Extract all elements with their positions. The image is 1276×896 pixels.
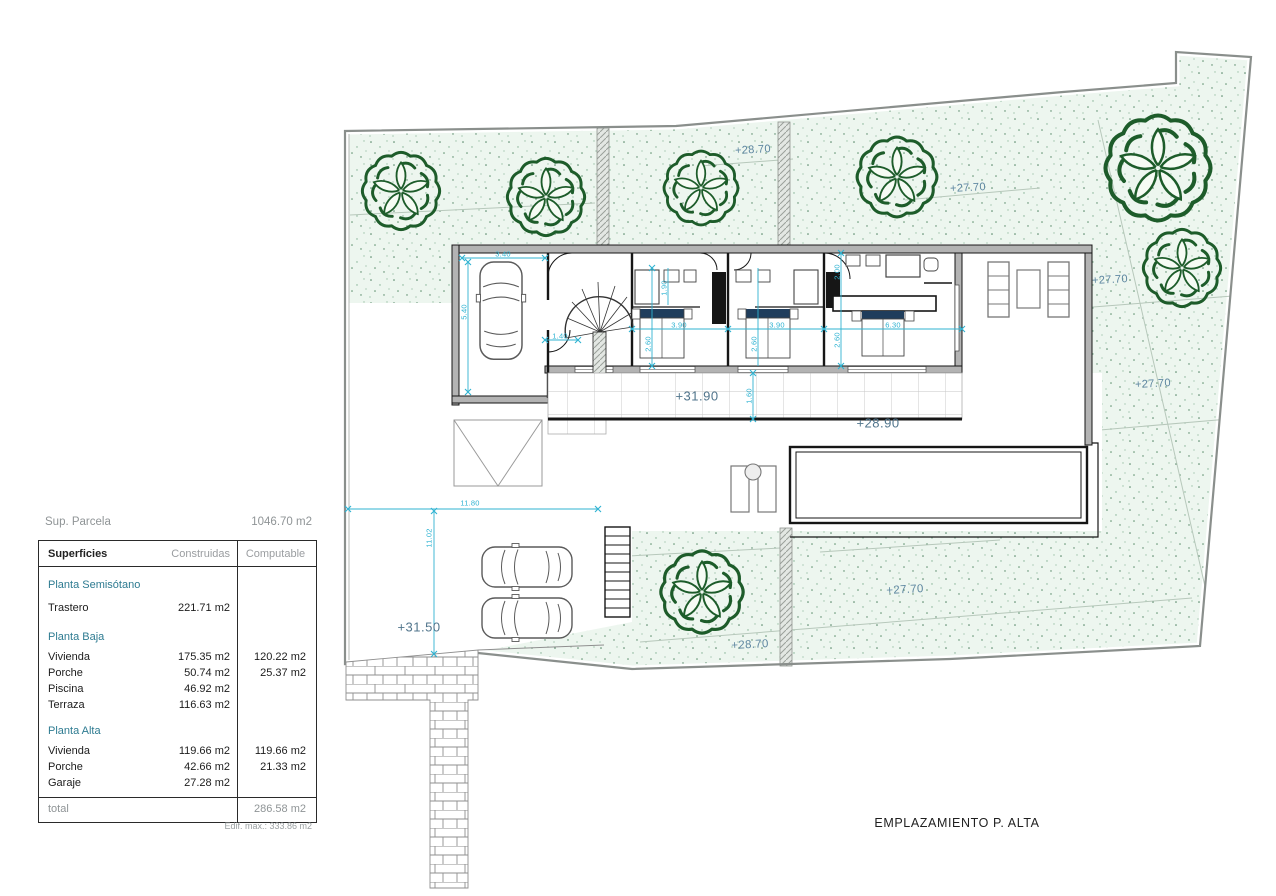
section-planta-baja: Planta Baja — [39, 619, 316, 649]
section-label: Planta Baja — [39, 631, 143, 643]
row-construida: 46.92 m2 — [143, 683, 237, 695]
col-construidas: Construidas — [143, 548, 237, 560]
wardrobe — [833, 296, 936, 311]
table-row: Trastero 221.71 m2 — [39, 597, 316, 619]
bed-headboard — [640, 309, 684, 318]
surfaces-table: Superficies Construidas Computable Plant… — [38, 540, 317, 823]
car-icon — [482, 595, 572, 642]
parcel-area-line: Sup. Parcela 1046.70 m2 — [45, 516, 312, 528]
parcel-area-value: 1046.70 m2 — [251, 516, 312, 528]
row-computable: 25.37 m2 — [237, 667, 314, 679]
row-label: Vivienda — [39, 745, 143, 757]
section-label: Planta Alta — [39, 725, 143, 737]
row-label: Piscina — [39, 683, 143, 695]
section-planta-semisotano: Planta Semisótano — [39, 567, 316, 597]
row-construida: 27.28 m2 — [143, 777, 237, 789]
row-label: Garaje — [39, 777, 143, 789]
pool — [790, 447, 1087, 523]
row-label: Porche — [39, 761, 143, 773]
table-header-row: Superficies Construidas Computable — [39, 541, 316, 567]
table-row: Porche 50.74 m2 25.37 m2 — [39, 665, 316, 681]
exterior-stair-icon — [605, 527, 630, 617]
row-label: Vivienda — [39, 651, 143, 663]
row-construida: 221.71 m2 — [143, 602, 237, 614]
section-planta-alta: Planta Alta — [39, 713, 316, 743]
section-label: Planta Semisótano — [39, 579, 143, 591]
table-row: Piscina 46.92 m2 — [39, 681, 316, 697]
total-label: total — [39, 803, 143, 815]
table-total-row: total 286.58 m2 — [39, 797, 316, 820]
row-computable: 21.33 m2 — [237, 761, 314, 773]
table-row: Vivienda 119.66 m2 119.66 m2 — [39, 743, 316, 759]
row-construida: 119.66 m2 — [143, 745, 237, 757]
edif-max-note: Edif. max.: 333.86 m2 — [38, 821, 312, 831]
sun-lounger-icon — [1048, 262, 1069, 317]
table-row: Porche 42.66 m2 21.33 m2 — [39, 759, 316, 775]
row-label: Porche — [39, 667, 143, 679]
retaining-wall — [346, 650, 478, 888]
col-computable: Computable — [237, 548, 314, 560]
parcel — [345, 52, 1251, 669]
sun-lounger-icon — [988, 262, 1009, 317]
row-construida: 116.63 m2 — [143, 699, 237, 711]
total-value: 286.58 m2 — [237, 803, 314, 815]
row-construida: 50.74 m2 — [143, 667, 237, 679]
table-row: Vivienda 175.35 m2 120.22 m2 — [39, 649, 316, 665]
row-construida: 42.66 m2 — [143, 761, 237, 773]
car-icon — [476, 262, 525, 359]
row-label: Trastero — [39, 602, 143, 614]
car-icon — [482, 544, 572, 591]
closet — [712, 272, 726, 324]
col-superficies: Superficies — [39, 548, 143, 560]
row-computable: 120.22 m2 — [237, 651, 314, 663]
table-row: Terraza 116.63 m2 — [39, 697, 316, 713]
garage-canopy — [454, 420, 542, 486]
bed-headboard — [746, 309, 790, 318]
site-plan-sheet: +28.70 +27.70 +27.70 +27.70 +31.90 +28.9… — [0, 0, 1276, 896]
table-divider — [237, 541, 238, 822]
row-computable: 119.66 m2 — [237, 745, 314, 757]
row-construida: 175.35 m2 — [143, 651, 237, 663]
bed-headboard — [862, 311, 904, 319]
row-label: Terraza — [39, 699, 143, 711]
side-table — [1017, 270, 1040, 308]
parcel-label: Sup. Parcela — [45, 516, 111, 528]
table-row: Garaje 27.28 m2 — [39, 775, 316, 791]
